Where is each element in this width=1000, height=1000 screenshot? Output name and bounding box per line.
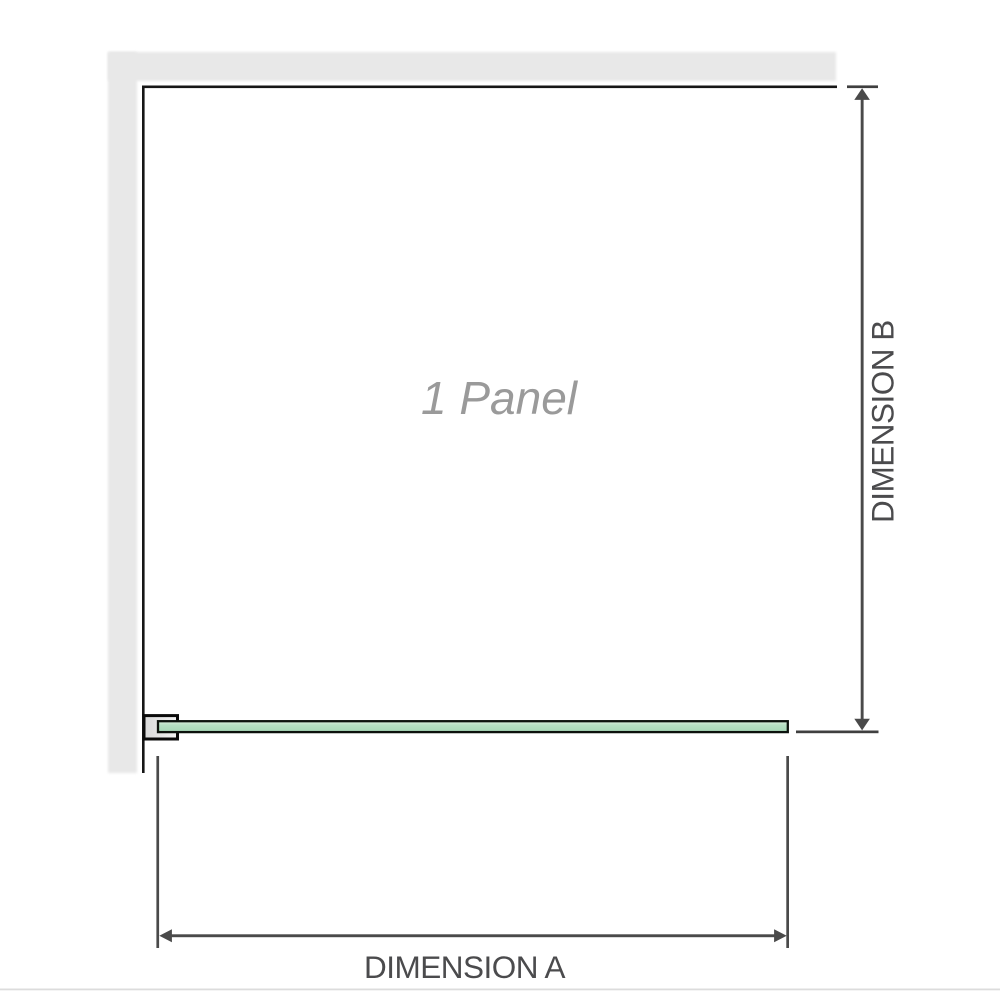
svg-text:1 Panel: 1 Panel — [421, 372, 579, 424]
svg-text:DIMENSION B: DIMENSION B — [865, 320, 901, 523]
svg-text:DIMENSION A: DIMENSION A — [364, 949, 566, 985]
